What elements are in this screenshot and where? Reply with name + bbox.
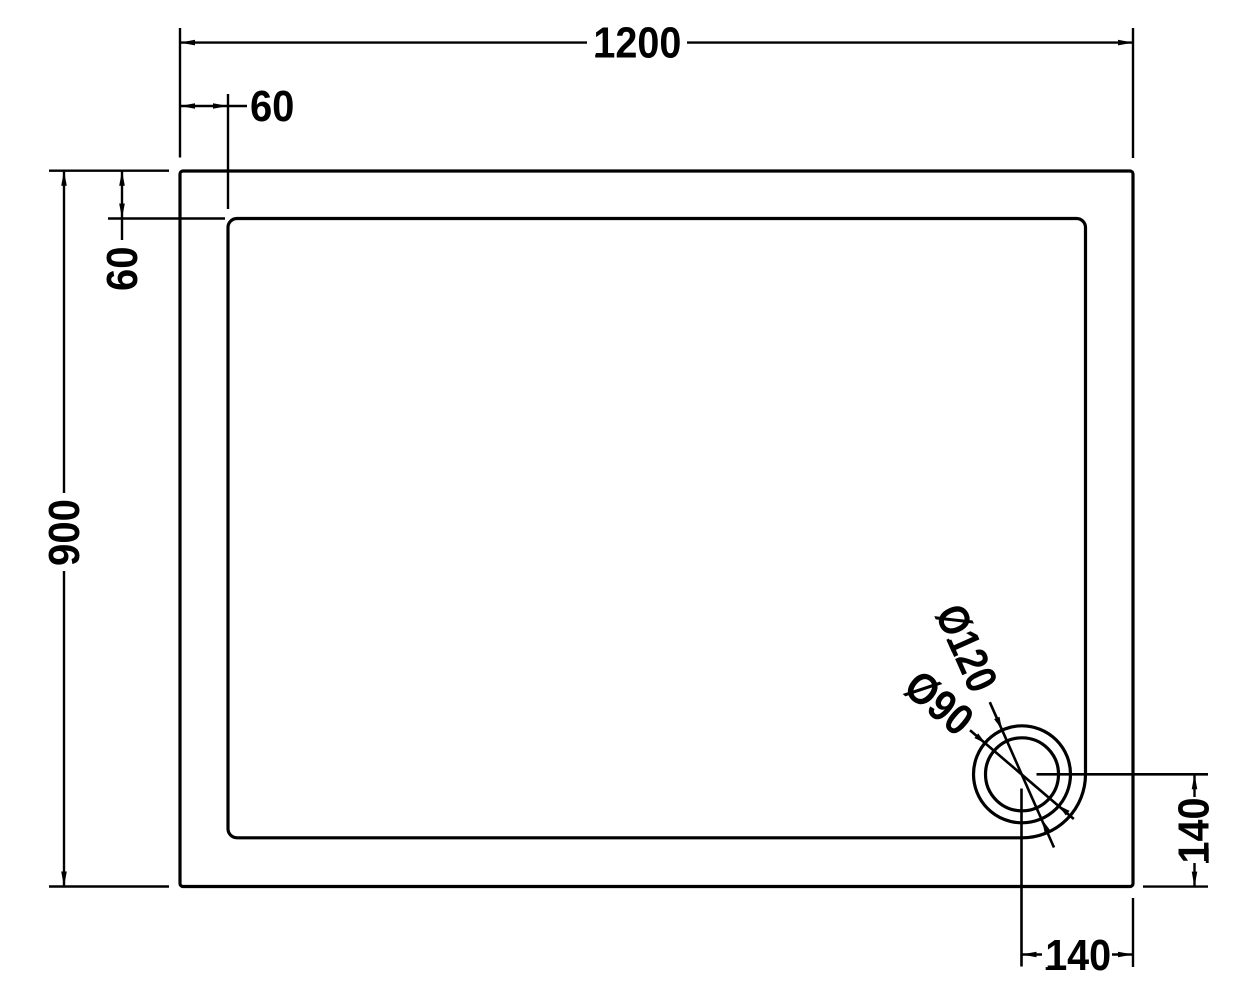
svg-text:60: 60 xyxy=(98,247,147,292)
svg-text:140: 140 xyxy=(1170,798,1219,864)
svg-text:140: 140 xyxy=(1045,931,1111,980)
svg-text:60: 60 xyxy=(250,82,295,131)
svg-text:1200: 1200 xyxy=(593,18,681,67)
svg-text:900: 900 xyxy=(40,499,89,566)
